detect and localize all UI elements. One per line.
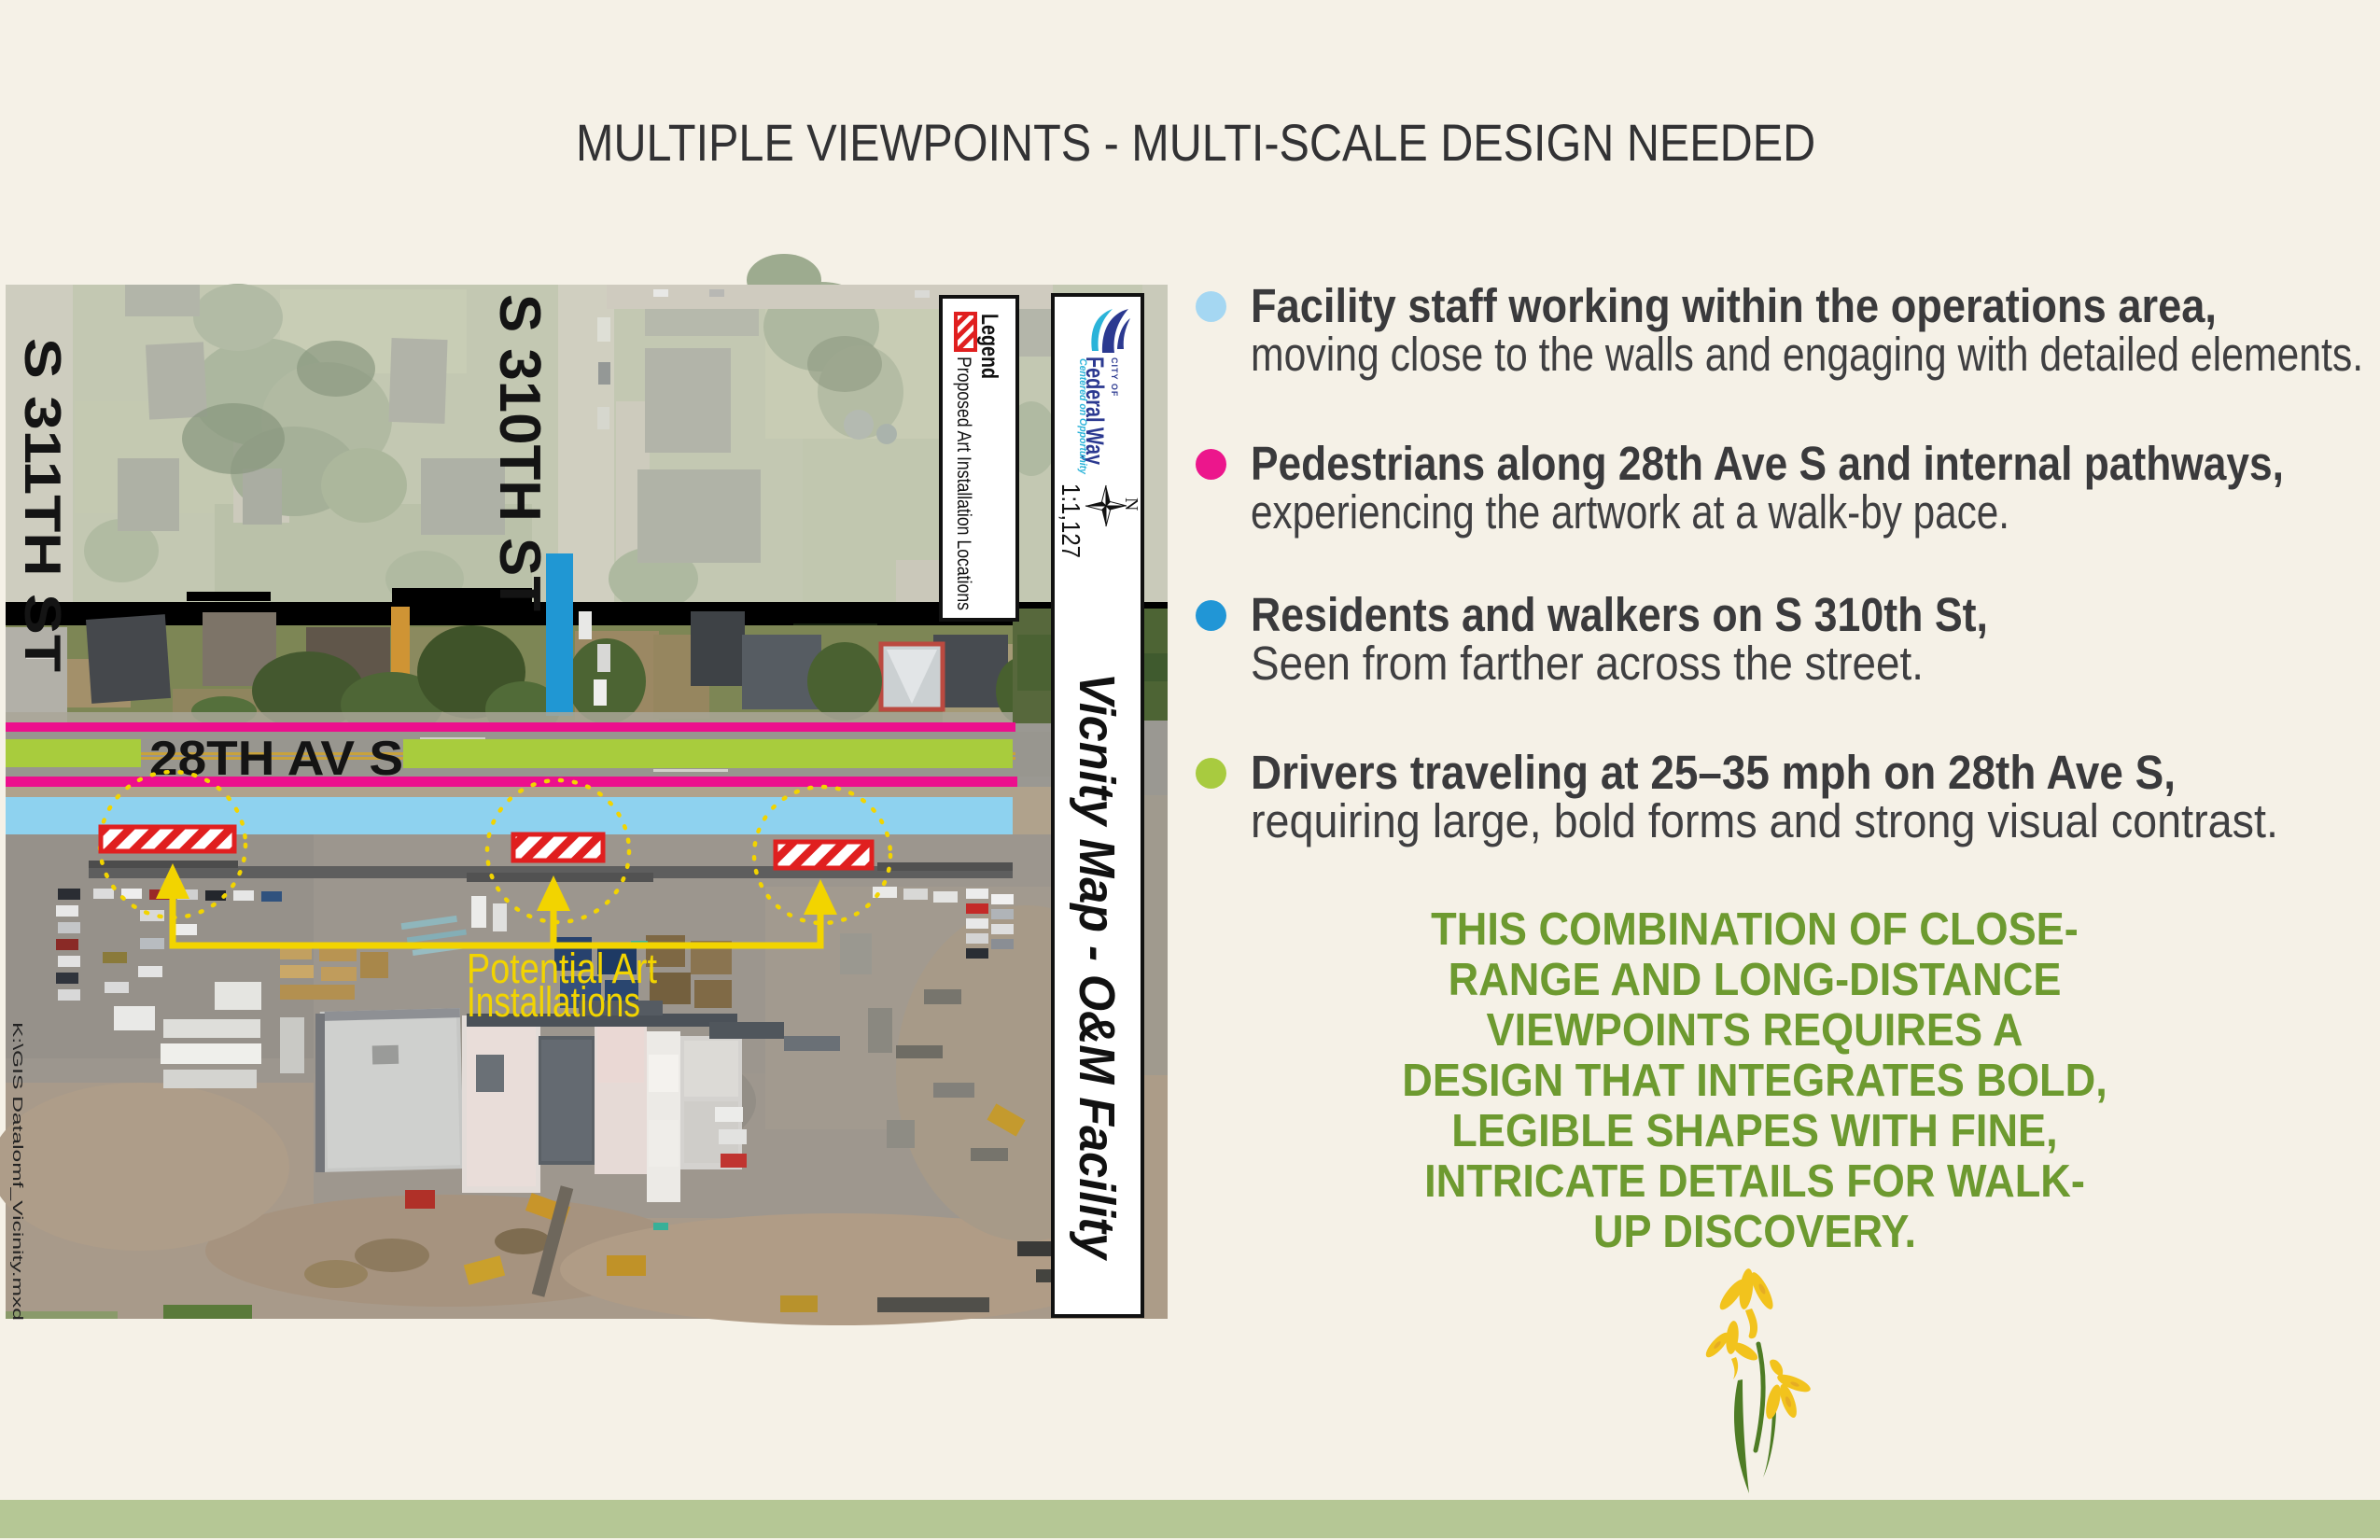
svg-text:Installations: Installations: [467, 978, 640, 1026]
svg-text:Vicnity Map - O&M Facility: Vicnity Map - O&M Facility: [1069, 673, 1125, 1262]
svg-text:S 310TH ST: S 310TH ST: [487, 294, 552, 611]
svg-text:S 311TH ST: S 311TH ST: [14, 338, 72, 672]
svg-text:K:\GIS Datalomf_Vicinity.mxd: K:\GIS Datalomf_Vicinity.mxd: [9, 1022, 25, 1321]
svg-text:CITY OF: CITY OF: [1110, 357, 1119, 397]
svg-text:Legend: Legend: [976, 314, 1002, 379]
svg-text:N: N: [1121, 497, 1141, 511]
svg-text:Centered on Opportunity: Centered on Opportunity: [1077, 358, 1088, 475]
svg-text:1:1,127: 1:1,127: [1057, 483, 1085, 558]
svg-text:Proposed Art Installation Loca: Proposed Art Installation Locations: [953, 357, 974, 610]
